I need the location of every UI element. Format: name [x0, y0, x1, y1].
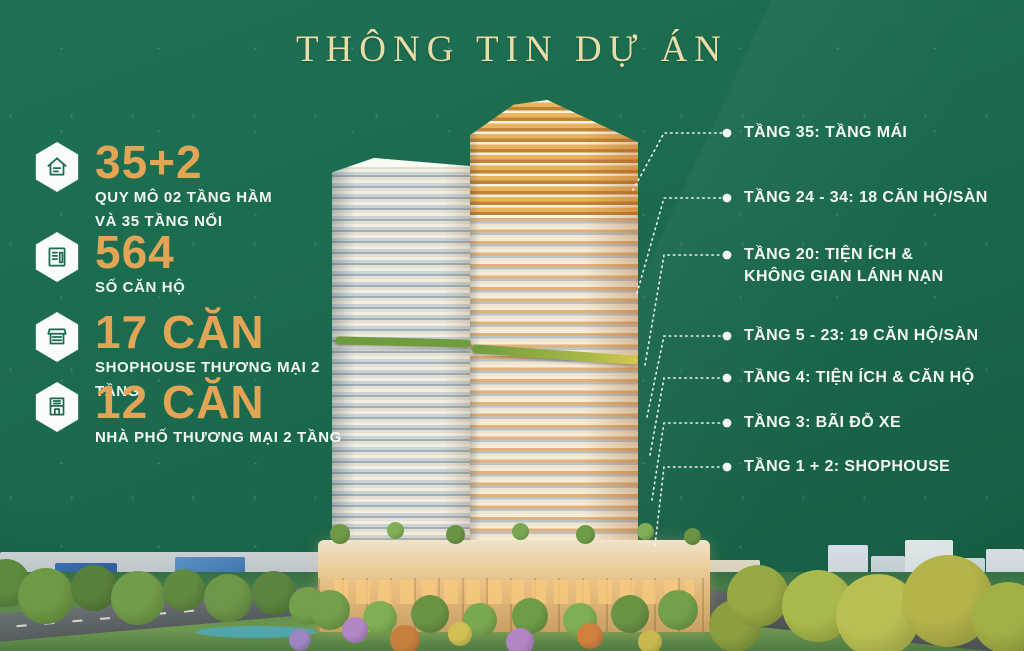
callout-floor-20: TẦNG 20: TIỆN ÍCH & KHÔNG GIAN LÁNH NẠN	[744, 244, 944, 288]
stat-label: QUY MÔ 02 TẦNG HẦM	[95, 186, 272, 210]
callout-bullet	[723, 463, 732, 472]
tower-right	[470, 100, 638, 570]
callout-floor-3: TẦNG 3: BÃI ĐỖ XE	[744, 412, 901, 434]
apartment-units-icon	[34, 232, 80, 282]
callout-bullet	[723, 194, 732, 203]
stat-value: 35+2	[95, 138, 272, 186]
flower-bed	[684, 528, 701, 545]
flower-bed	[512, 523, 529, 540]
callout-bullet	[723, 419, 732, 428]
callout-bullet	[723, 374, 732, 383]
flower-bed	[446, 525, 465, 544]
callout-line: TẦNG 35: TẦNG MÁI	[744, 122, 907, 144]
stat-label: SỐ CĂN HỘ	[95, 276, 185, 300]
callout-line: KHÔNG GIAN LÁNH NẠN	[744, 266, 944, 288]
tree-canopy	[111, 571, 165, 625]
stat-label: NHÀ PHỐ THƯƠNG MẠI 2 TẦNG	[95, 426, 342, 450]
tree-canopy	[411, 595, 449, 633]
stat-scale: 35+2 QUY MÔ 02 TẦNG HẦM VÀ 35 TẦNG NỔI	[34, 138, 354, 234]
flower-bed	[576, 525, 595, 544]
scale-house-icon	[34, 142, 80, 192]
callout-floor-24-34: TẦNG 24 - 34: 18 CĂN HỘ/SÀN	[744, 187, 988, 209]
flower-bed	[387, 522, 404, 539]
callout-floor-5-23: TẦNG 5 - 23: 19 CĂN HỘ/SÀN	[744, 325, 978, 347]
tree-canopy	[71, 565, 117, 611]
flower-bed	[289, 629, 311, 651]
callout-line: TẦNG 5 - 23: 19 CĂN HỘ/SÀN	[744, 325, 978, 347]
callout-line: TẦNG 24 - 34: 18 CĂN HỘ/SÀN	[744, 187, 988, 209]
callout-bullet	[723, 251, 732, 260]
tree-canopy	[727, 565, 789, 627]
tree-canopy	[18, 568, 74, 624]
flower-bed	[637, 523, 654, 540]
flower-bed	[390, 625, 420, 651]
stat-value: 12 CĂN	[95, 378, 342, 426]
callout-bullet	[723, 129, 732, 138]
project-info-infographic: THÔNG TIN DỰ ÁN TẦNG 35: TẦNG MÁI	[0, 0, 1024, 651]
stat-townhouse: 12 CĂN NHÀ PHỐ THƯƠNG MẠI 2 TẦNG	[34, 378, 354, 450]
flower-bed	[638, 630, 662, 651]
stat-units: 564 SỐ CĂN HỘ	[34, 228, 354, 300]
callout-line: TẦNG 3: BÃI ĐỖ XE	[744, 412, 901, 434]
flower-bed	[342, 617, 368, 643]
page-title: THÔNG TIN DỰ ÁN	[0, 28, 1024, 71]
stat-value: 564	[95, 228, 185, 276]
stat-value: 17 CĂN	[95, 308, 354, 356]
tree-canopy	[363, 601, 397, 635]
callout-line: TẦNG 20: TIỆN ÍCH &	[744, 244, 944, 266]
callout-line: TẦNG 4: TIỆN ÍCH & CĂN HỘ	[744, 367, 974, 389]
flower-bed	[577, 623, 603, 649]
tree-canopy	[658, 590, 698, 630]
callout-floor-35: TẦNG 35: TẦNG MÁI	[744, 122, 907, 144]
flower-bed	[506, 628, 534, 651]
shophouse-icon	[34, 312, 80, 362]
flower-bed	[448, 622, 472, 646]
tree-canopy	[163, 569, 205, 611]
callout-bullet	[723, 332, 732, 341]
tree-canopy	[204, 574, 252, 622]
tree-canopy	[611, 595, 649, 633]
callout-floor-4: TẦNG 4: TIỆN ÍCH & CĂN HỘ	[744, 367, 974, 389]
callout-line: TẦNG 1 + 2: SHOPHOUSE	[744, 456, 950, 478]
tower-right-shading	[470, 100, 638, 570]
townhouse-icon	[34, 382, 80, 432]
callout-floor-1-2: TẦNG 1 + 2: SHOPHOUSE	[744, 456, 950, 478]
flower-bed	[330, 524, 350, 544]
